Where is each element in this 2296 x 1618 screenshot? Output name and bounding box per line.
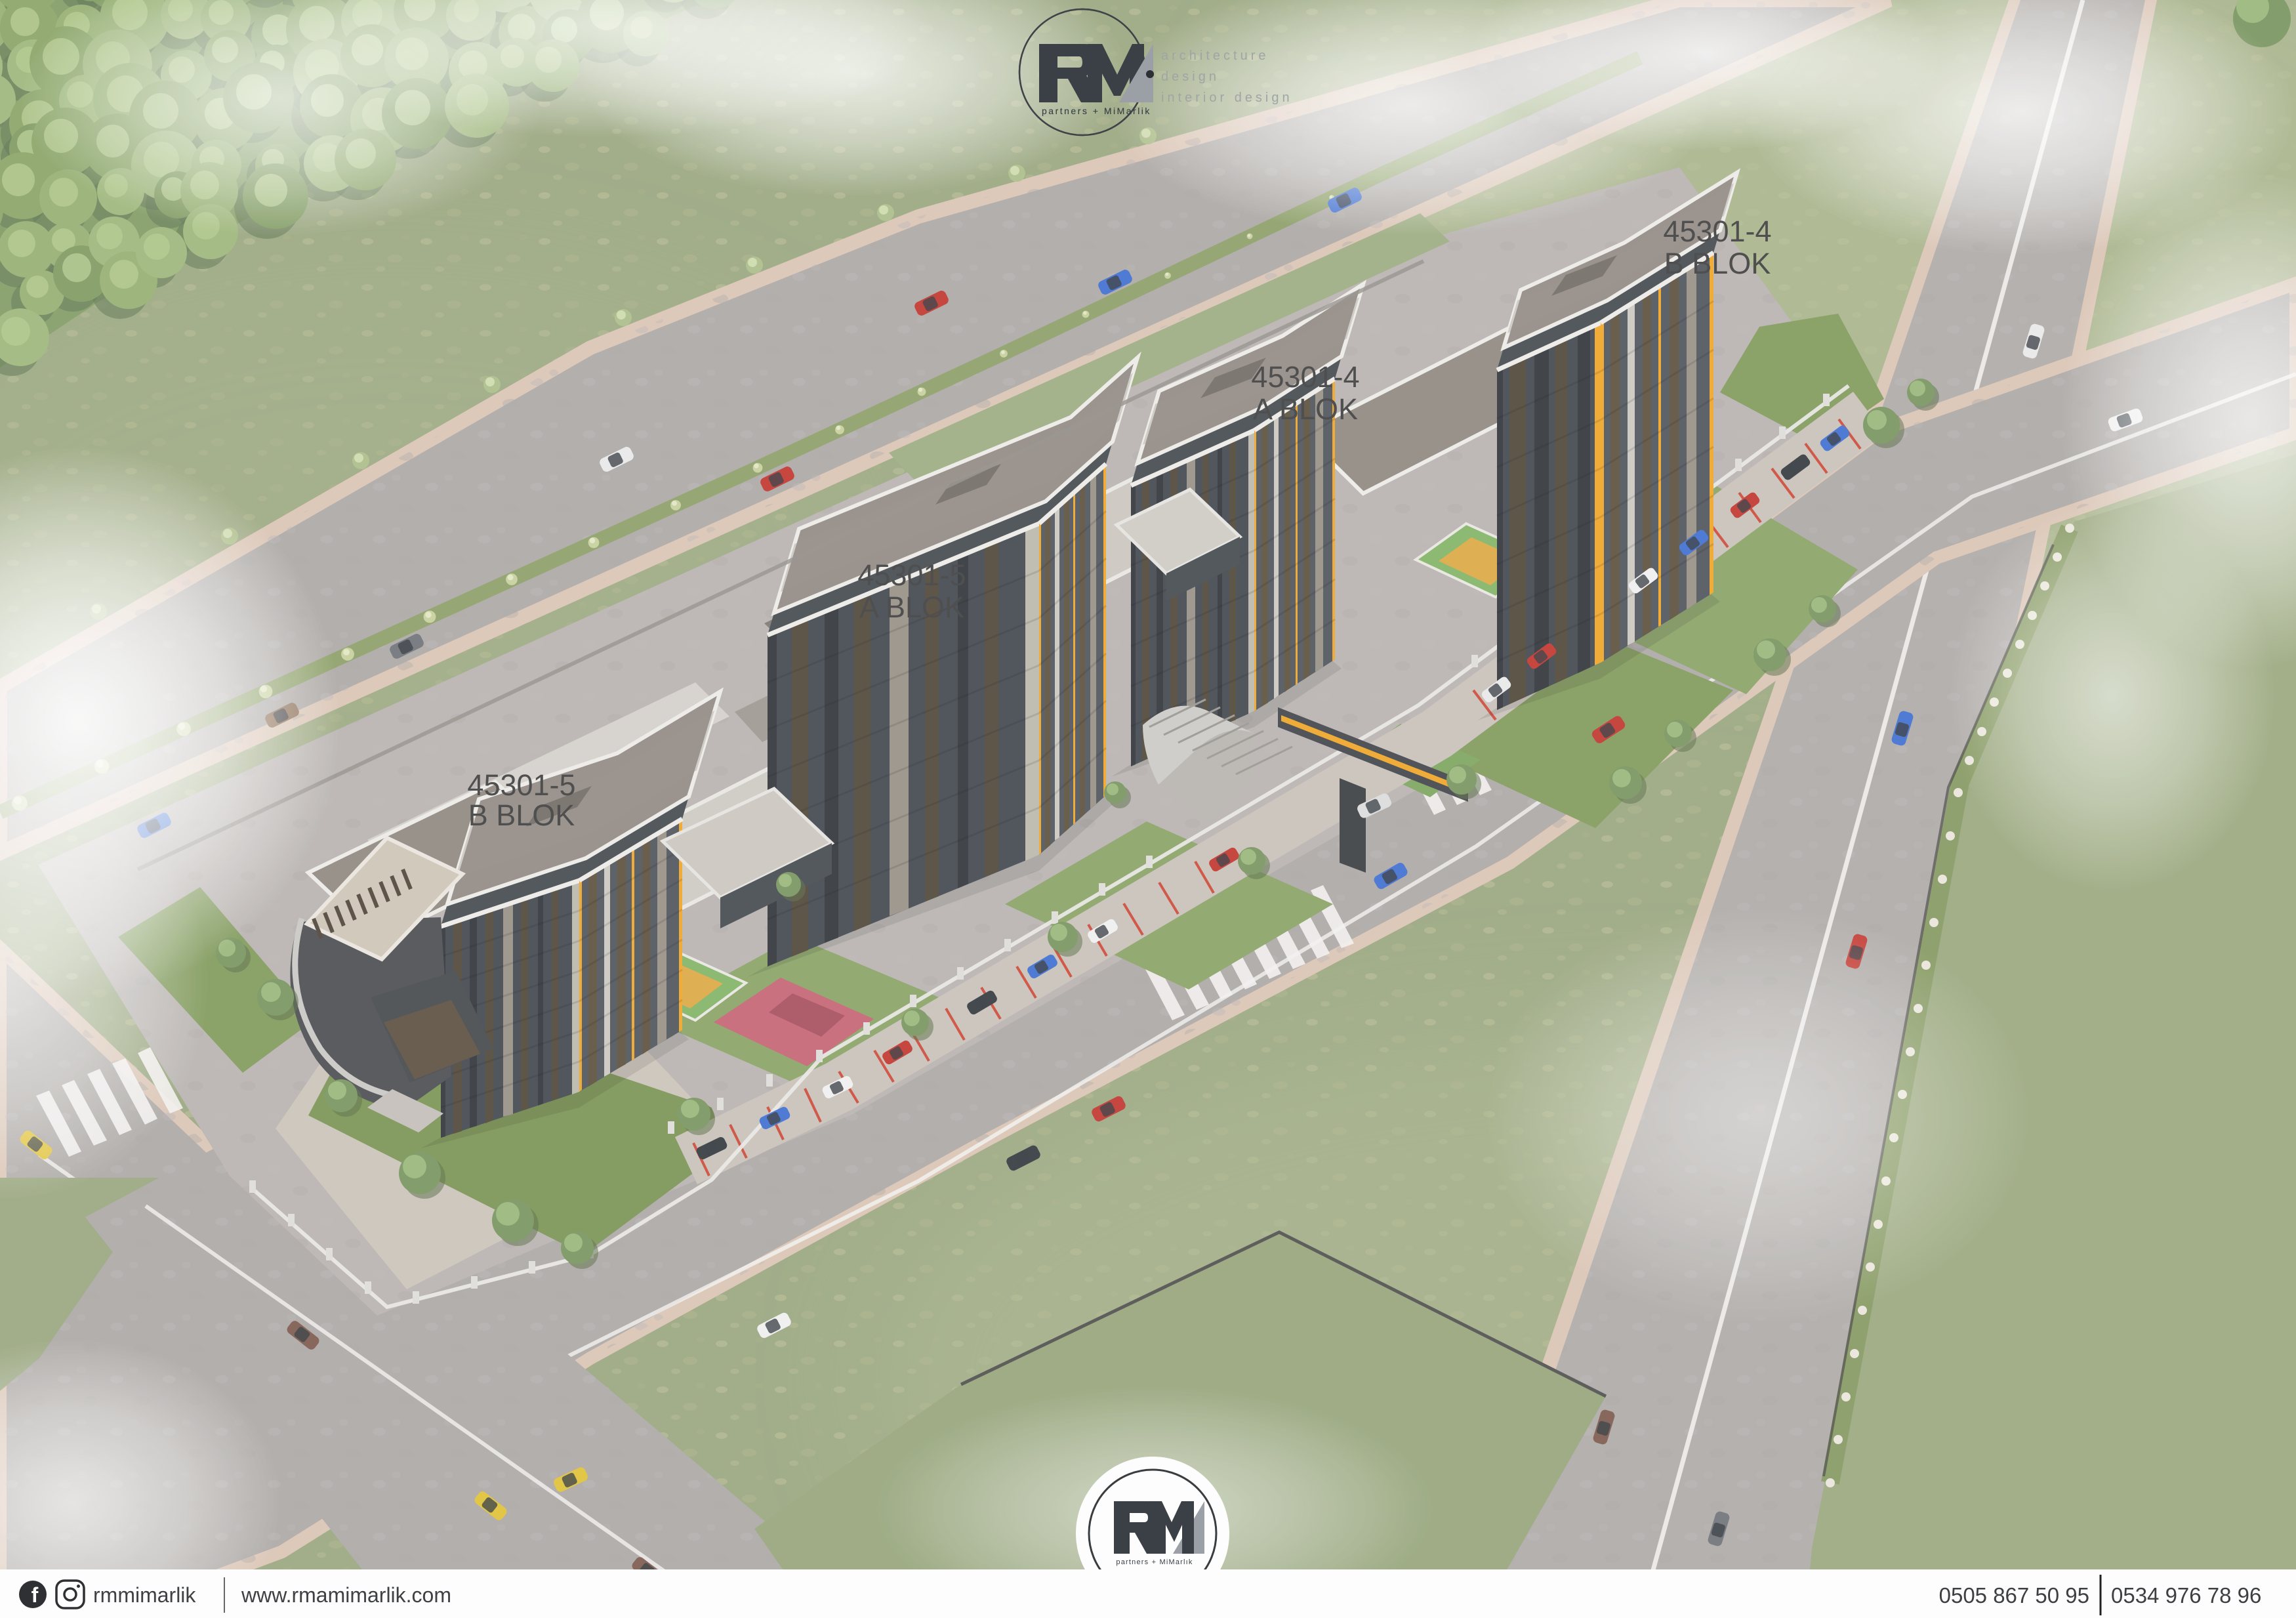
svg-text:design: design bbox=[1161, 70, 1220, 84]
svg-text:0505 867 50 95: 0505 867 50 95 bbox=[1939, 1583, 2089, 1608]
svg-text:rmmimarlik: rmmimarlik bbox=[93, 1583, 196, 1607]
svg-text:partners + MiMarlik: partners + MiMarlik bbox=[1042, 106, 1151, 116]
svg-text:www.rmamimarlik.com: www.rmamimarlik.com bbox=[241, 1583, 451, 1607]
svg-text:f: f bbox=[31, 1583, 39, 1607]
svg-text:partners + MiMarlık: partners + MiMarlık bbox=[1116, 1558, 1193, 1566]
svg-text:0534 976 78 96: 0534 976 78 96 bbox=[2111, 1583, 2261, 1608]
svg-text:architecture: architecture bbox=[1161, 49, 1269, 63]
svg-text:interior design: interior design bbox=[1161, 91, 1293, 105]
